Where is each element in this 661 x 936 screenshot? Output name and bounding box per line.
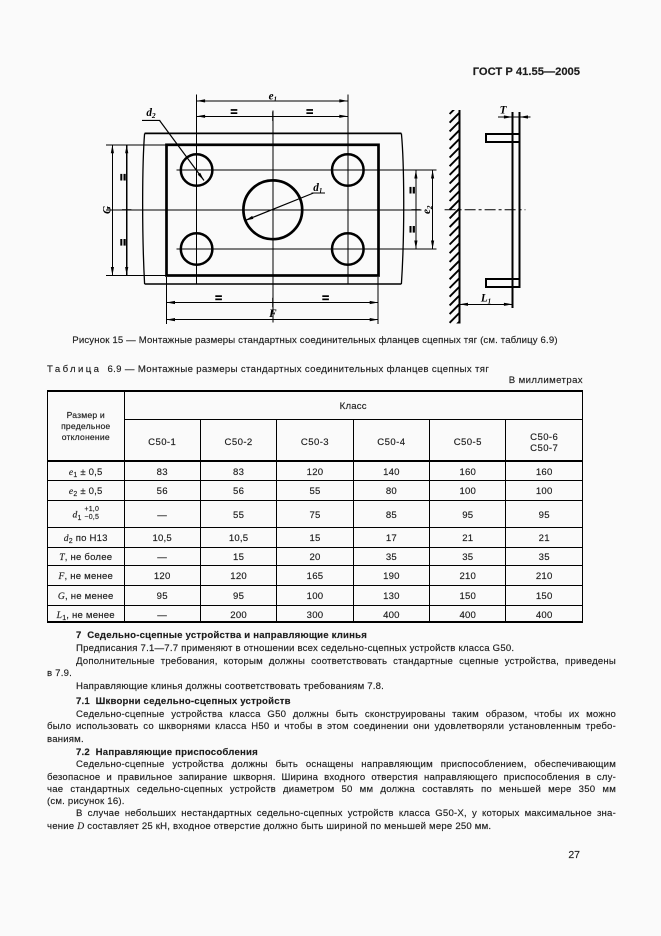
svg-text:F: F xyxy=(268,308,277,320)
svg-text:e1: e1 xyxy=(269,90,277,103)
svg-text:d2: d2 xyxy=(146,107,156,120)
svg-text:T: T xyxy=(500,105,508,117)
svg-text:d1: d1 xyxy=(313,182,322,195)
svg-text:L1: L1 xyxy=(480,292,491,305)
svg-text:G: G xyxy=(102,206,114,214)
svg-text:e2: e2 xyxy=(421,205,434,214)
